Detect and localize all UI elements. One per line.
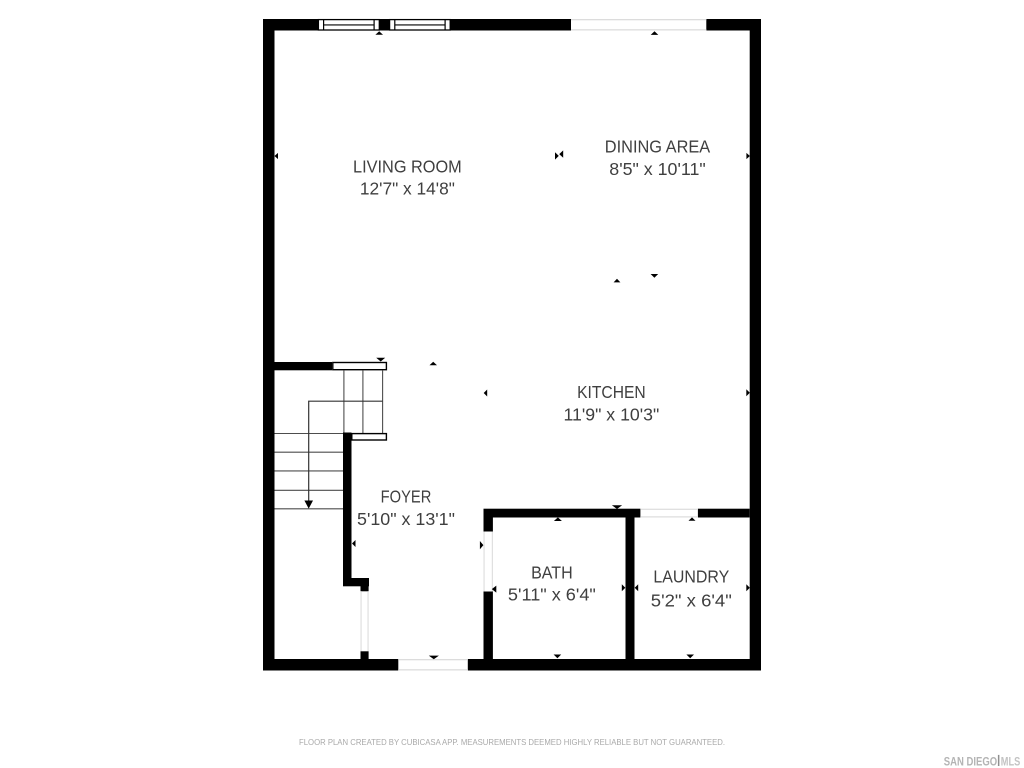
svg-text:5'10" x 13'1": 5'10" x 13'1" bbox=[357, 509, 455, 529]
svg-text:MLS: MLS bbox=[1001, 755, 1020, 768]
svg-text:5'2" x 6'4": 5'2" x 6'4" bbox=[651, 590, 732, 610]
svg-text:DINING AREA: DINING AREA bbox=[605, 137, 711, 157]
svg-text:LIVING ROOM: LIVING ROOM bbox=[353, 157, 462, 177]
svg-text:FOYER: FOYER bbox=[381, 486, 432, 506]
svg-text:12'7" x 14'8": 12'7" x 14'8" bbox=[360, 178, 455, 198]
svg-text:8'5" x 10'11": 8'5" x 10'11" bbox=[609, 159, 705, 179]
svg-text:SAN DIEGO: SAN DIEGO bbox=[944, 755, 997, 768]
svg-text:BATH: BATH bbox=[531, 562, 573, 582]
svg-text:5'11" x 6'4": 5'11" x 6'4" bbox=[508, 585, 596, 605]
svg-text:KITCHEN: KITCHEN bbox=[577, 382, 646, 402]
svg-text:LAUNDRY: LAUNDRY bbox=[653, 567, 729, 587]
svg-text:FLOOR PLAN CREATED BY CUBICASA: FLOOR PLAN CREATED BY CUBICASA APP. MEAS… bbox=[299, 738, 725, 747]
svg-text:11'9" x 10'3": 11'9" x 10'3" bbox=[564, 405, 660, 425]
